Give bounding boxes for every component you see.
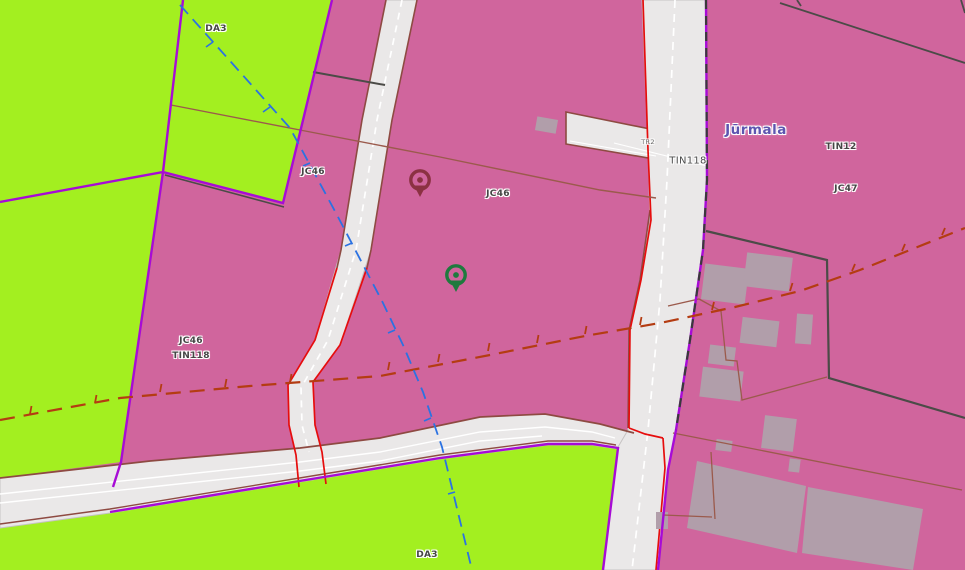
map-viewport[interactable]: DA3 JC46 JC46 TIN118 TR2 TIN12 JC47 JC46… [0, 0, 965, 570]
building [740, 317, 780, 347]
building [743, 252, 793, 291]
building [761, 415, 797, 452]
green-parcel-northwest [0, 0, 183, 202]
pin-dot [453, 272, 459, 278]
pin-dot [417, 177, 423, 183]
building [699, 367, 743, 402]
building [788, 458, 801, 472]
building [715, 439, 732, 452]
building [701, 263, 749, 304]
building [795, 313, 813, 344]
building [708, 344, 736, 366]
map-canvas [0, 0, 965, 570]
